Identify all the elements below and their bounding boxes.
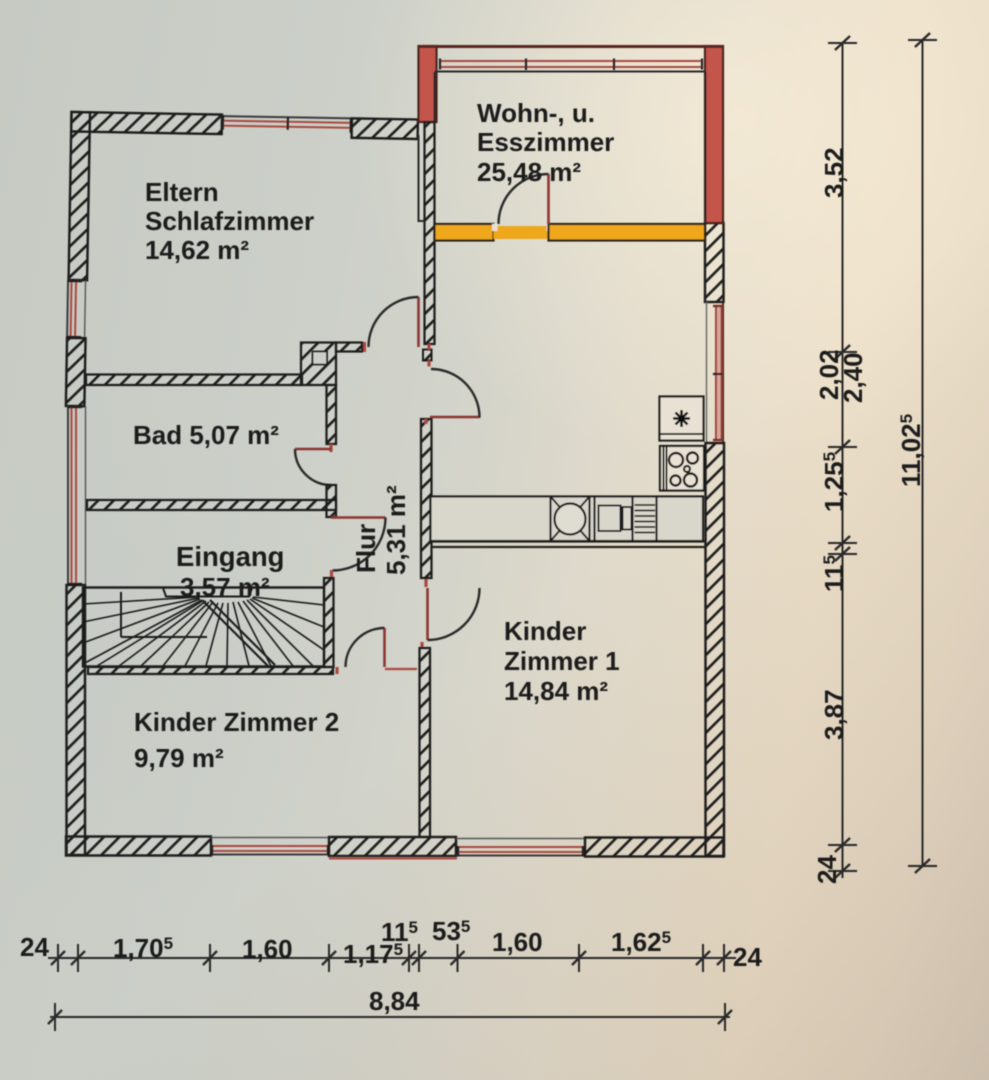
svg-text:3,57 m²: 3,57 m² [180,572,270,602]
svg-text:Wohn-, u.: Wohn-, u. [477,98,595,128]
svg-text:Zimmer 1: Zimmer 1 [504,646,620,676]
svg-text:1,60: 1,60 [492,927,543,957]
svg-text:24: 24 [733,942,762,972]
svg-text:Kinder: Kinder [504,616,586,646]
svg-text:3,52: 3,52 [819,147,849,198]
svg-text:535: 535 [432,916,470,946]
svg-text:Bad 5,07 m²: Bad 5,07 m² [133,420,279,450]
svg-text:Flur: Flur [351,524,381,573]
svg-text:8,84: 8,84 [369,986,420,1016]
svg-text:1,625: 1,625 [611,927,671,957]
svg-text:5,31 m²: 5,31 m² [381,485,411,575]
svg-text:24: 24 [812,855,842,884]
svg-text:14,62 m²: 14,62 m² [145,235,249,265]
svg-text:25,48 m²: 25,48 m² [477,157,581,187]
svg-text:2,40: 2,40 [838,352,868,403]
svg-text:115: 115 [381,917,418,947]
svg-text:Esszimmer: Esszimmer [477,127,614,157]
svg-text:Schlafzimmer: Schlafzimmer [145,206,314,236]
svg-text:9,79 m²: 9,79 m² [134,743,224,773]
svg-text:115: 115 [819,555,849,592]
svg-text:14,84 m²: 14,84 m² [504,676,608,706]
svg-text:Eltern: Eltern [145,177,219,207]
svg-text:1,255: 1,255 [819,452,849,512]
svg-text:3,87: 3,87 [819,689,849,740]
svg-text:1,60: 1,60 [242,934,293,964]
svg-text:11,025: 11,025 [896,414,926,487]
svg-text:Eingang: Eingang [176,541,284,572]
svg-text:Kinder Zimmer 2: Kinder Zimmer 2 [134,707,339,737]
svg-text:24: 24 [20,932,49,962]
